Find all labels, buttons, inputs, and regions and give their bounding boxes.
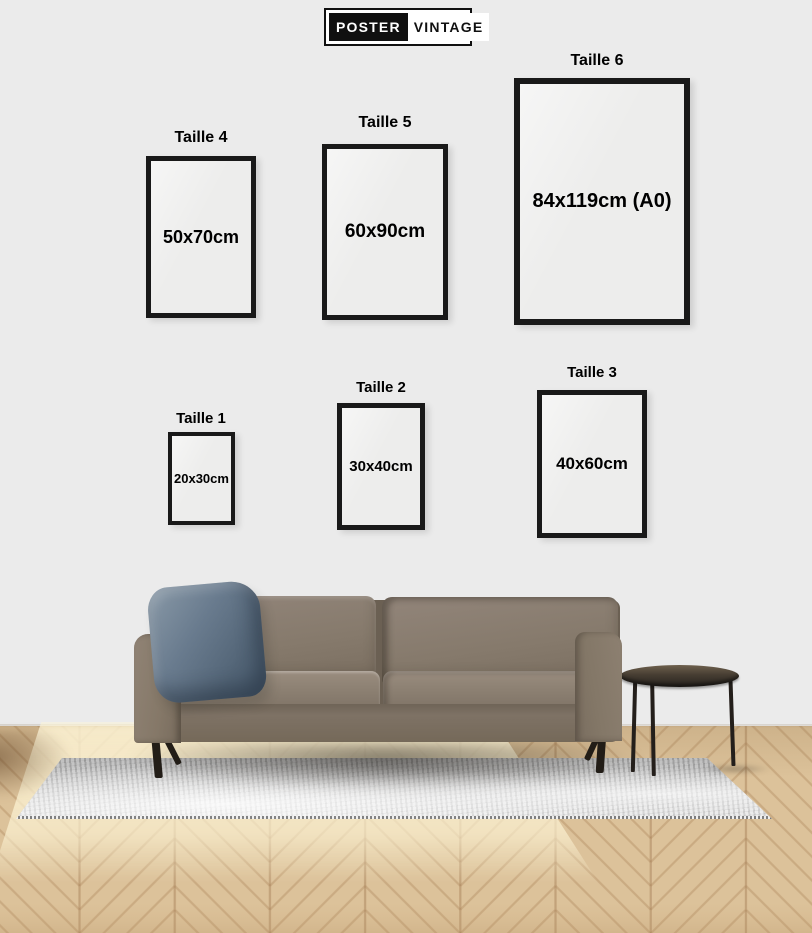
poster-frame-taille-4: 50x70cm: [146, 156, 256, 318]
poster-frame-taille-2: 30x40cm: [337, 403, 425, 530]
sofa-front-right-leg-brace: [584, 731, 602, 761]
throw-pillow: [146, 579, 268, 704]
sofa-front-left-leg-brace: [162, 734, 182, 765]
size-label-taille-1: Taille 1: [176, 410, 226, 427]
size-label-taille-5: Taille 5: [358, 114, 411, 132]
brand-logo: POSTER VINTAGE: [324, 8, 472, 46]
rug-fringe: [10, 816, 776, 821]
sofa-seat-cushion-left: [149, 671, 380, 710]
dimension-text-taille-5: 60x90cm: [345, 221, 425, 243]
size-label-taille-2: Taille 2: [356, 379, 406, 396]
logo-poster-text: POSTER: [329, 13, 408, 41]
wall-floor-boundary: [0, 724, 812, 728]
sofa-front-right-leg: [596, 733, 607, 773]
poster-size-guide: POSTER VINTAGE Taille 4 Taille 5 Taille …: [0, 0, 812, 933]
sofa-base: [140, 704, 621, 742]
side-table-leg: [729, 680, 736, 766]
sofa-back-cushion-left: [166, 596, 376, 684]
size-label-taille-3: Taille 3: [567, 364, 617, 381]
sofa-seat-cushion-right: [383, 671, 618, 710]
poster-frame-taille-5: 60x90cm: [322, 144, 448, 320]
sofa-arm-right: [575, 632, 622, 741]
side-table-leg: [650, 683, 656, 776]
dimension-text-taille-6: 84x119cm (A0): [533, 190, 672, 213]
side-table-shadow: [700, 764, 770, 774]
side-table-leg: [631, 680, 637, 772]
sunlight-patch: [0, 722, 630, 882]
wood-floor: [0, 726, 812, 933]
size-label-taille-4: Taille 4: [174, 129, 227, 147]
poster-frame-taille-1: 20x30cm: [168, 432, 235, 525]
sofa-backrest: [150, 600, 620, 720]
sofa-back-cushion-right: [382, 597, 618, 685]
sofa-floor-shadow: [130, 742, 640, 790]
logo-vintage-text: VINTAGE: [408, 13, 490, 41]
poster-frame-taille-3: 40x60cm: [537, 390, 647, 538]
poster-frame-taille-6: 84x119cm (A0): [514, 78, 690, 325]
side-table-top: [620, 665, 739, 687]
sofa-front-left-leg: [151, 736, 163, 778]
area-rug: [10, 753, 776, 821]
sofa-arm-left: [134, 634, 181, 743]
dimension-text-taille-2: 30x40cm: [349, 458, 412, 475]
dimension-text-taille-1: 20x30cm: [174, 471, 229, 486]
dimension-text-taille-3: 40x60cm: [556, 454, 628, 474]
floor-left-shadow: [0, 730, 72, 800]
dimension-text-taille-4: 50x70cm: [163, 227, 239, 248]
size-label-taille-6: Taille 6: [570, 52, 623, 70]
